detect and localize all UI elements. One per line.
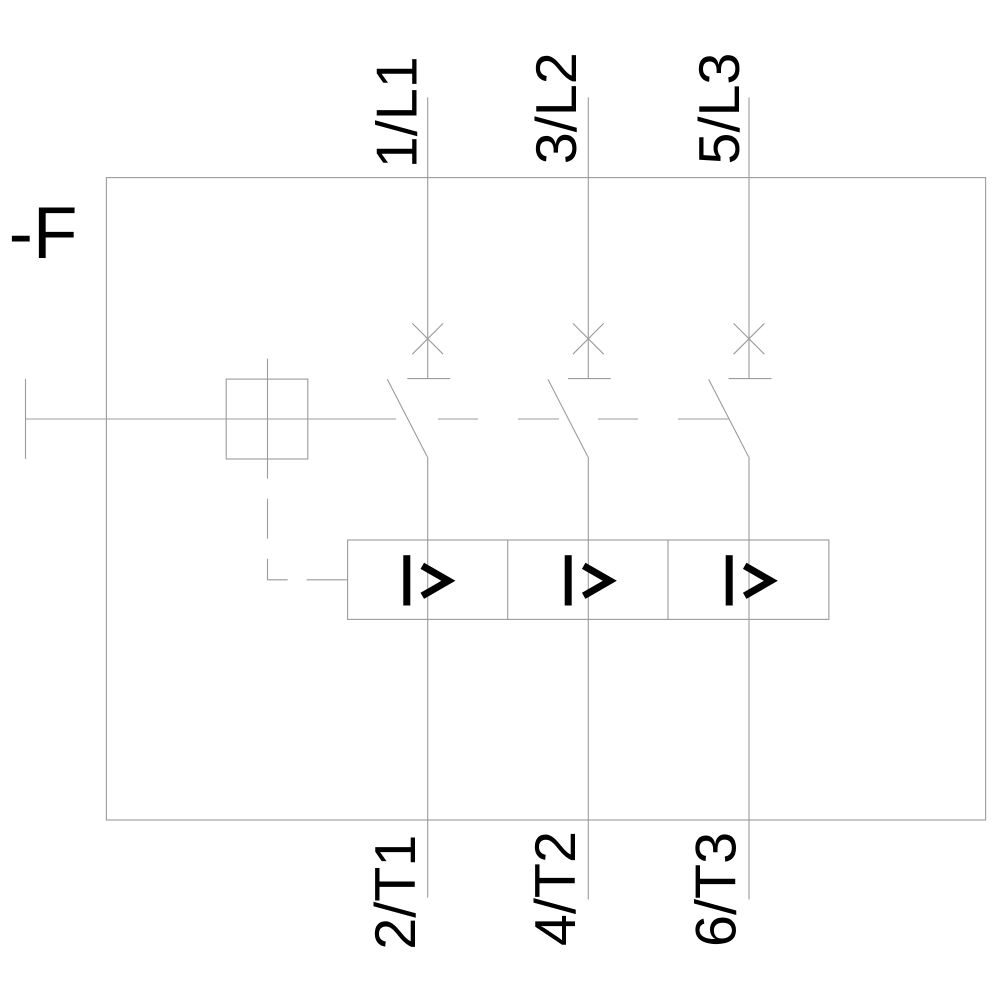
svg-text:4/T2: 4/T2 (524, 831, 588, 946)
svg-text:1/L1: 1/L1 (366, 56, 430, 168)
svg-text:3/L2: 3/L2 (525, 52, 589, 164)
svg-text:5/L3: 5/L3 (688, 53, 752, 165)
svg-text:6/T3: 6/T3 (685, 832, 749, 947)
svg-text:-F: -F (9, 193, 78, 274)
svg-text:2/T1: 2/T1 (364, 835, 428, 950)
